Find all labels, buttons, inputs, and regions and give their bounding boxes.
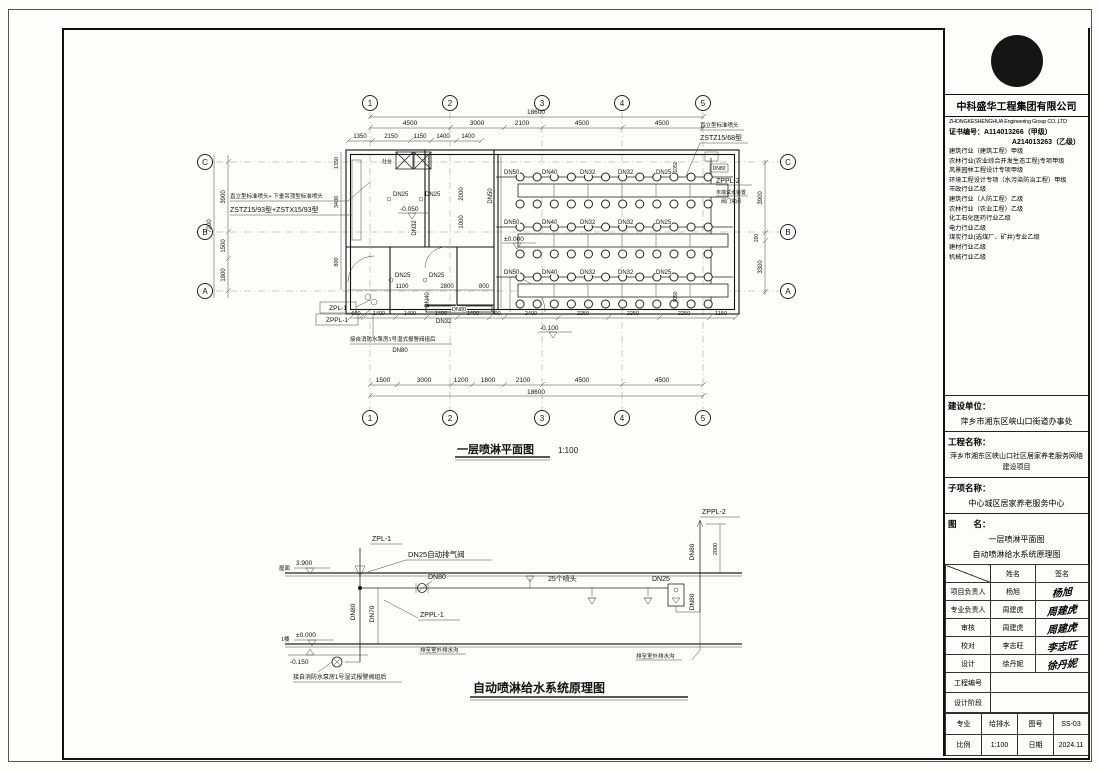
dim-label: 800 (479, 284, 490, 290)
level-label: ±0.000 (296, 632, 316, 639)
annotation: DN25自动排气阀 (408, 549, 465, 559)
grid-bubble-label: A (202, 287, 208, 296)
subproject-section: 子项名称： 中心城区居家养老服务中心 (945, 477, 1088, 513)
annotation: 排至室外排水沟 (420, 646, 459, 654)
signature: 周建虎 (1047, 619, 1077, 637)
room-label: 灶台 (382, 158, 392, 165)
company-name-en: ZHONGKESHENGHUA Engineering Group CO.,LT… (949, 119, 1084, 125)
pipe-label: DN80 (689, 543, 696, 560)
dim-label: 2000 (713, 543, 719, 555)
level-label: 3.900 (296, 560, 313, 567)
company-logo (991, 35, 1043, 87)
dim-label: 7200 (207, 219, 213, 233)
dim-label: 1400 (373, 311, 385, 317)
pipe-label: DN70 (369, 605, 376, 622)
qualification: 建筑行业（人防工程）乙级 (949, 195, 1084, 205)
grid-bubble-label: 5 (701, 99, 706, 108)
sprinkler-symbol (588, 588, 596, 604)
pipe-label: DN50 (504, 270, 520, 276)
pipe-label: DN40 (542, 170, 558, 176)
pipe-label: DN80 (392, 348, 408, 354)
table (518, 184, 728, 197)
pipe-label: DN32 (618, 220, 634, 226)
grid-bubble-label: C (785, 158, 791, 167)
pipe-label: DN25 (395, 273, 411, 279)
annotation: ZSTZ15/68型 (700, 133, 742, 142)
diagonal-cell (946, 565, 991, 583)
leader-line (356, 300, 370, 307)
leader-line (425, 581, 432, 586)
dim-label: 1400 (435, 311, 447, 317)
grid-bubble-label: 4 (620, 414, 625, 423)
name-cell: 周建虎 (991, 601, 1036, 619)
role-cell: 审核 (946, 619, 991, 637)
project-name-label: 工程名称： (948, 436, 1085, 448)
pipe-label: DN80 (689, 593, 696, 610)
project-no-label: 工程编号 (946, 673, 991, 693)
dim-label: 200 (754, 234, 760, 243)
dim-label: 4500 (655, 120, 670, 127)
table-row: 姓名 签名 (946, 565, 1089, 583)
level-marker (549, 332, 557, 338)
cert-number-value: A114013266（甲级） (984, 129, 1052, 136)
annotation: 末端试水装置 (716, 189, 746, 196)
name-cell: 李志旺 (991, 637, 1036, 655)
project-name-section: 工程名称： 萍乡市湘东区峡山口社区居家养老服务网络建设项目 (945, 431, 1088, 477)
major-value: 给排水 (982, 714, 1018, 735)
dim-label: 4500 (655, 377, 670, 384)
project-name-value: 萍乡市湘东区峡山口社区居家养老服务网络建设项目 (948, 452, 1085, 473)
role-cell: 专业负责人 (946, 601, 991, 619)
grid-bubble-label: C (202, 158, 208, 167)
pipe-label: DN32 (618, 170, 634, 176)
annotation: 接自消防水泵房1号湿式报警阀组后 (350, 335, 436, 343)
schematic-title: 自动喷淋给水系统原理图 (473, 680, 605, 695)
title-block: 中科盛华工程集团有限公司 ZHONGKESHENGHUA Engineering… (943, 28, 1088, 756)
col-header-sign: 签名 (1036, 565, 1089, 583)
name-cell: 周建虎 (991, 619, 1036, 637)
dim-label: 1400 (436, 134, 450, 140)
annotation: 直立型标准喷头+ 下垂吊顶型标准喷头 (230, 192, 323, 200)
drawing-name-2: 自动喷淋给水系统原理图 (948, 549, 1085, 560)
drawing-name-1: 一层喷淋平面图 (948, 534, 1085, 545)
dim-label: 2100 (515, 120, 530, 127)
dim-label: 3900 (758, 191, 764, 205)
annotation: ZPPL-2 (716, 178, 740, 185)
pipe-label: DN32 (436, 319, 452, 325)
branch-row: DN50 DN40 DN32 DN32 DN25 (496, 220, 733, 254)
level-marker (408, 213, 416, 219)
qualification: 农林行业(农业综合开发生态工程)专项甲级 (949, 157, 1084, 167)
dim-label: 700 (491, 311, 500, 317)
table (518, 284, 728, 297)
qualification: 农林行业（农业工程）乙级 (949, 205, 1084, 215)
door-arc (425, 247, 446, 268)
table-row: 工程编号 (946, 673, 1089, 693)
dim-label: 1150 (715, 311, 727, 317)
dim-label: 1400 (461, 134, 475, 140)
signature: 杨旭 (1052, 583, 1072, 600)
table-row: 专业负责人 周建虎 周建虎 (946, 601, 1089, 619)
leader-line (318, 662, 332, 672)
dim-label: 2250 (627, 311, 639, 317)
dim-label: 2400 (525, 311, 537, 317)
sprinkler-symbol (526, 576, 534, 588)
plan-title: 一层喷淋平面图 (457, 442, 534, 456)
pipe-label: DN25 (656, 170, 672, 176)
pipe-label: DN25 (656, 270, 672, 276)
drain-pipe (692, 650, 700, 660)
riser-connection (705, 152, 718, 161)
dim-label: 2250 (678, 311, 690, 317)
dim-label: 1200 (454, 377, 469, 384)
sprinkler-symbol (387, 197, 391, 201)
drawing-info-table: 专业 给排水 图号 SS-03 比例 1:100 日期 2024.11 (945, 713, 1089, 756)
level-label: ±0.000 (504, 236, 524, 243)
dim-label: 1150 (414, 134, 428, 140)
level-marker (306, 649, 314, 655)
sprinkler-symbol (644, 588, 652, 604)
riser-label: ZPPL-1 (326, 317, 348, 324)
signature-cell: 周建虎 (1036, 601, 1089, 619)
cert-number-label: 证书编号： (949, 129, 984, 136)
table-row: 专业 给排水 图号 SS-03 (946, 714, 1089, 735)
pipe-label: DN50 (504, 220, 520, 226)
table-row: 设计阶段 (946, 693, 1089, 713)
dim-label: 4500 (403, 120, 418, 127)
drawing-name-label: 图 名： (948, 518, 1085, 530)
level-label: 1楼 (281, 635, 290, 643)
grid-bubble-label: B (785, 228, 790, 237)
pipe-label: DN40 (425, 292, 431, 308)
design-stage-label: 设计阶段 (946, 693, 991, 713)
riser-symbol (371, 299, 377, 305)
leader-line (686, 143, 700, 176)
cert-number: 证书编号：A114013266（甲级） (949, 127, 1084, 137)
name-cell: 徐丹妮 (991, 655, 1036, 673)
riser-label: ZPPL-2 (702, 509, 726, 516)
stove-counter (352, 160, 361, 240)
dim-label: 18600 (527, 109, 545, 116)
dim-label: 1350 (334, 157, 340, 169)
level-label: -0.050 (400, 206, 419, 213)
pipe-label: DN32 (580, 220, 596, 226)
pipe-label: DN25 (429, 273, 445, 279)
dim-label: 1500 (376, 377, 391, 384)
project-no-value (991, 673, 1089, 693)
dim-label: 18600 (527, 389, 545, 396)
grid-bubble-label: 2 (448, 99, 453, 108)
qualification: 煤炭行业(选煤厂、矿井)专业乙级 (949, 233, 1084, 243)
dim-label: 1350 (353, 134, 367, 140)
build-unit-label: 建设单位： (948, 400, 1085, 412)
signature-table: 姓名 签名 项目负责人 杨旭 杨旭 专业负责人 周建虎 周建虎 审核 周建虎 周… (945, 564, 1089, 713)
company-name: 中科盛华工程集团有限公司 (945, 94, 1088, 117)
fig-no-value: SS-03 (1054, 714, 1089, 735)
scale-value: 1:100 (982, 735, 1018, 756)
qualification: 化工石化医药行业乙级 (949, 214, 1084, 224)
qualification: 电力行业乙级 (949, 224, 1084, 234)
pipe-label: DN50 (504, 170, 520, 176)
certificates-section: ZHONGKESHENGHUA Engineering Group CO.,LT… (945, 117, 1088, 267)
table-row: 比例 1:100 日期 2024.11 (946, 735, 1089, 756)
dim-label: 4500 (575, 120, 590, 127)
grid-bubble-label: 5 (701, 414, 706, 423)
level-label: -0.100 (540, 325, 559, 332)
grid-bubble-label: 2 (448, 414, 453, 423)
qualification: 市政行业乙级 (949, 185, 1084, 195)
dim-label: 2000 (459, 187, 465, 201)
level-label: -0.150 (290, 659, 309, 666)
signature-cell: 杨旭 (1036, 583, 1089, 601)
fig-no-label: 图号 (1018, 714, 1054, 735)
pipe-label: DN50 (488, 188, 494, 204)
branch-row: DN50 DN40 DN32 DN32 DN25 (496, 270, 733, 304)
valve-icon (334, 659, 341, 666)
level-marker (308, 640, 316, 646)
table-row: 审核 周建虎 周建虎 (946, 619, 1089, 637)
subproject-value: 中心城区居家养老服务中心 (948, 498, 1085, 509)
annotation: 直立型标准喷头 (700, 121, 739, 129)
dim-label: 3000 (417, 377, 432, 384)
annotation: 接自消防水泵房1号湿式报警阀组后 (293, 673, 386, 681)
pipe-label: DN80 (428, 574, 446, 581)
level-label: 屋面 (279, 565, 291, 572)
pipe-label: DN32 (618, 270, 634, 276)
subproject-label: 子项名称： (948, 482, 1085, 494)
annotation: ZSTZ15/93型+ZSTX15/93型 (230, 205, 319, 214)
signature: 李志旺 (1047, 637, 1077, 655)
dim-label: 3400 (334, 196, 340, 208)
major-label: 专业 (946, 714, 982, 735)
annotation: 排至室外排水沟 (636, 652, 675, 660)
date-value: 2024.11 (1054, 735, 1089, 756)
grid-bubble-label: 1 (368, 99, 373, 108)
sprinkler-symbol (419, 197, 423, 201)
table-row: 项目负责人 杨旭 杨旭 (946, 583, 1089, 601)
drawing-name-section: 图 名： 一层喷淋平面图 自动喷淋给水系统原理图 (945, 513, 1088, 564)
pipe-label: DN32 (580, 270, 596, 276)
pipe-label: DN80 (713, 166, 726, 172)
qualification: 建筑行业（建筑工程）甲级 (949, 147, 1084, 157)
grid-bubble-label: 1 (368, 414, 373, 423)
signature-cell: 徐丹妮 (1036, 655, 1089, 673)
grid-bubble-label: 4 (620, 99, 625, 108)
dim-label: 2250 (577, 311, 589, 317)
pipe-label: DN25 (425, 192, 441, 198)
annotation: 阀门常闭 (721, 198, 741, 205)
dim-label: 600 (351, 311, 360, 317)
dim-label: 800 (334, 257, 340, 266)
drawing-sheet: 1 2 3 4 5 1 2 3 4 5 C B A (0, 0, 1099, 771)
leader-line (368, 560, 406, 572)
date-label: 日期 (1018, 735, 1054, 756)
table-row: 设计 徐丹妮 徐丹妮 (946, 655, 1089, 673)
dim-label: 1100 (396, 284, 410, 290)
annotation: 25个喷头 (548, 574, 577, 583)
dim-label: 3900 (221, 190, 227, 204)
pipe-label: DN25 (652, 576, 670, 583)
pipe-label: DN40 (542, 220, 558, 226)
grid-bubble-label: A (785, 287, 791, 296)
pipe-label: DN25 (393, 192, 409, 198)
end-test-device (674, 588, 678, 592)
dim-label: 2100 (516, 377, 531, 384)
floor-plan: 1 2 3 4 5 1 2 3 4 5 C B A (198, 96, 796, 461)
cert-number-2: A214013263（乙级） (949, 137, 1084, 147)
dim-label: 1400 (404, 311, 416, 317)
dim-label: 4500 (575, 377, 590, 384)
drawing-canvas: 1 2 3 4 5 1 2 3 4 5 C B A (0, 0, 943, 771)
pipe-label: DN32 (412, 220, 418, 236)
logo-section (945, 28, 1088, 94)
pipe-label: DN80 (452, 307, 466, 313)
branch-row: DN50 DN40 DN32 DN32 DN25 (496, 170, 733, 204)
plan-scale: 1:100 (558, 446, 579, 455)
riser-label: ZPL-1 (329, 305, 347, 312)
dim-label: 1050 (673, 291, 679, 302)
dim-label: 1800 (481, 377, 496, 384)
dim-label: 1400 (467, 311, 479, 317)
dim-label: 2150 (384, 134, 398, 140)
scale-label: 比例 (946, 735, 982, 756)
build-unit-value: 萍乡市湘东区峡山口街道办事处 (948, 416, 1085, 427)
dim-label: 1050 (673, 161, 679, 172)
grid-bubble-label: 3 (540, 414, 545, 423)
role-cell: 校对 (946, 637, 991, 655)
dim-label: 1000 (459, 215, 465, 229)
table-row: 校对 李志旺 李志旺 (946, 637, 1089, 655)
qualification: 环境工程设计专项（水污染防治工程）甲级 (949, 176, 1084, 186)
leader-line (348, 182, 370, 201)
dim-label: 2800 (440, 284, 454, 290)
qualification: 建材行业乙级 (949, 243, 1084, 253)
title-block-spacer (945, 267, 1088, 395)
sprinkler-symbol (423, 278, 427, 282)
pipe-label: DN25 (656, 220, 672, 226)
pipe-label: DN40 (542, 270, 558, 276)
dim-label: 1500 (221, 239, 227, 253)
qualification: 风景园林工程设计专项甲级 (949, 166, 1084, 176)
sprinkler-schematic: ZPL-1 屋面 3.900 DN25自动排气阀 DN80 (279, 509, 742, 700)
signature: 周建虎 (1047, 601, 1077, 619)
dim-label: 3300 (758, 260, 764, 274)
col-header-name: 姓名 (991, 565, 1036, 583)
dim-label: 3000 (470, 120, 485, 127)
pipe-label: DN80 (350, 603, 357, 620)
signature: 徐丹妮 (1047, 655, 1077, 673)
pipe-label: DN32 (580, 170, 596, 176)
role-cell: 项目负责人 (946, 583, 991, 601)
qualification: 机械行业乙级 (949, 253, 1084, 263)
riser-label: ZPL-1 (372, 536, 391, 543)
name-cell: 杨旭 (991, 583, 1036, 601)
dim-label: 1800 (221, 268, 227, 282)
grid-bubble-label: 3 (540, 99, 545, 108)
end-test-device (672, 598, 680, 603)
role-cell: 设计 (946, 655, 991, 673)
table (518, 234, 728, 247)
signature-cell: 周建虎 (1036, 619, 1089, 637)
leader-line (384, 600, 418, 618)
design-stage-value (991, 693, 1089, 713)
build-unit-section: 建设单位： 萍乡市湘东区峡山口街道办事处 (945, 395, 1088, 431)
signature-cell: 李志旺 (1036, 637, 1089, 655)
riser-label: ZPPL-1 (420, 612, 444, 619)
